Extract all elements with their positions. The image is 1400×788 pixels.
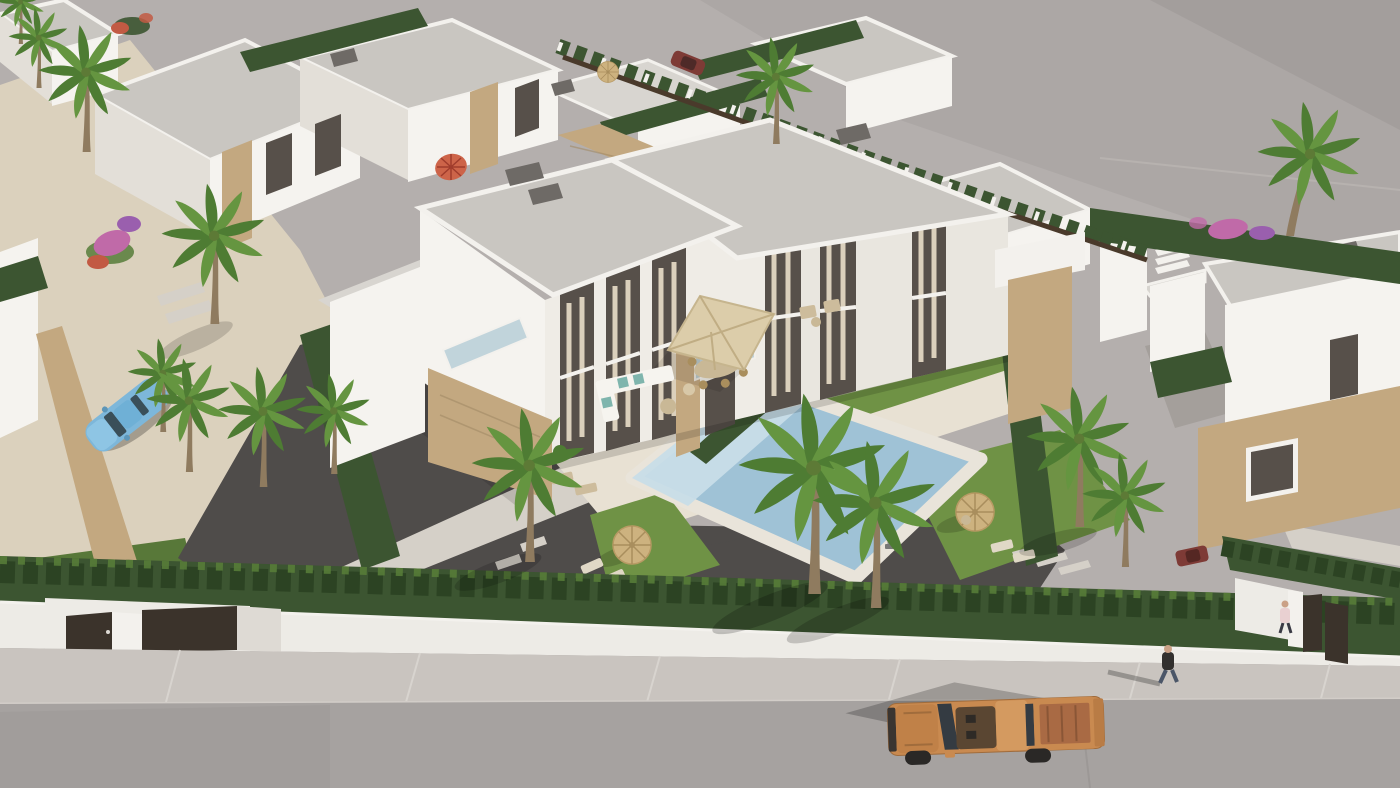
garden-table [961,515,971,525]
window-glass [1251,444,1293,496]
gate-pillar [112,612,142,654]
terrace-stone-pillar [1008,266,1072,424]
right-gate-pillar [1288,590,1303,648]
gate-handle [106,630,110,634]
road-patch [0,705,330,788]
truck-mirror [945,751,955,757]
truck-cab-roof [995,700,1029,751]
right-gate-panel [1325,602,1348,664]
red-parasol-ribs [437,154,465,180]
truck-wheel [905,750,931,765]
truck-rear-glass [1025,704,1034,746]
truck-grille [887,708,897,752]
wall-corner [237,606,281,652]
straw-parasol [956,493,994,531]
aerial-render: Aerial 3D render of a Mediterranean vill… [0,0,1400,788]
side-table [811,317,821,327]
truck-cockpit [955,706,996,749]
right-gate-panel [1303,594,1322,652]
truck-tailgate [1093,698,1105,746]
truck-hood [895,704,939,753]
straw-parasol [613,526,651,564]
truck-seat [966,715,976,723]
straw-parasol-small [598,62,619,83]
driveway-gate [142,606,237,652]
truck-seat [966,731,976,739]
street [0,648,1400,788]
truck-wheel [1025,748,1051,763]
render-viewport: Aerial 3D render of a Mediterranean vill… [0,0,1400,788]
